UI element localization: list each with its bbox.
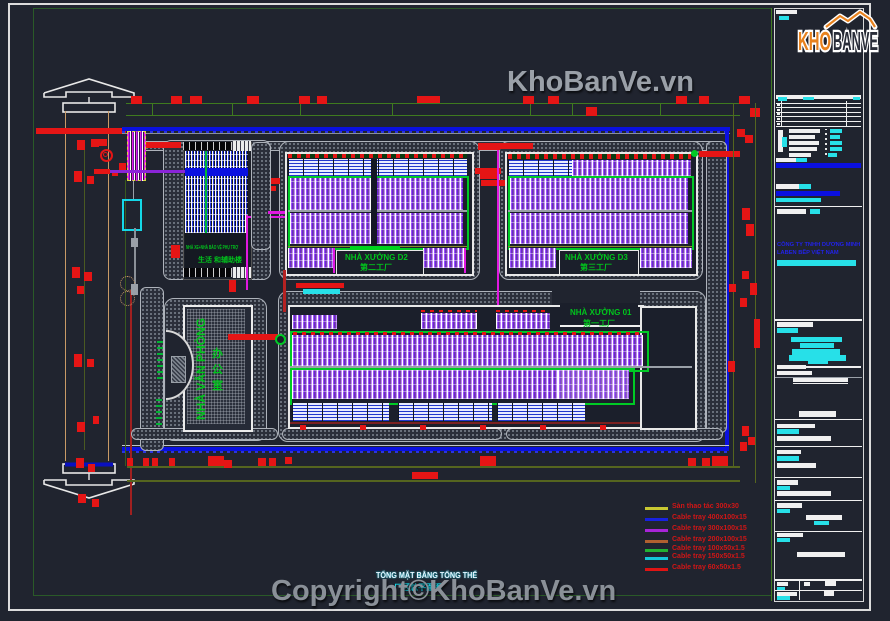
svg-text:KHO: KHO: [798, 26, 831, 56]
svg-text:BANVE: BANVE: [833, 26, 878, 56]
